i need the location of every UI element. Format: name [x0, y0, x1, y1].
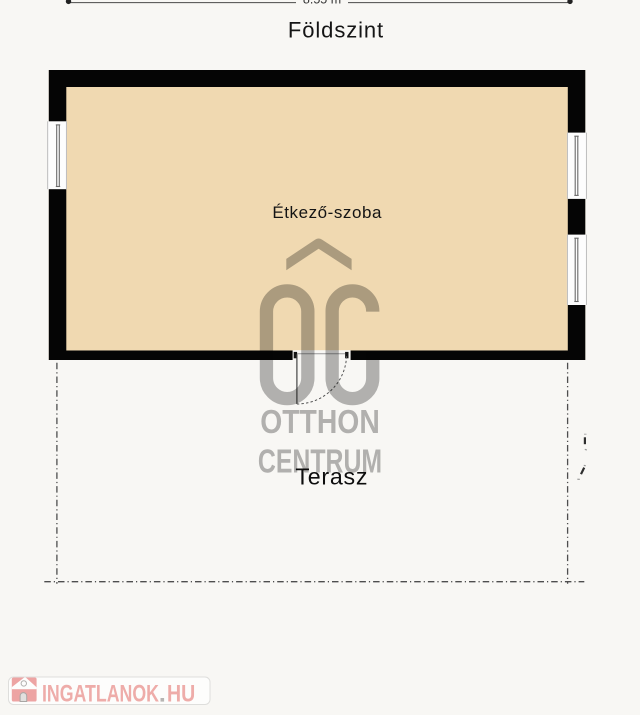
svg-text:HU: HU [167, 681, 195, 708]
svg-text:Étkező-szoba: Étkező-szoba [272, 203, 382, 222]
svg-text:CENTRUM: CENTRUM [258, 443, 382, 480]
svg-text:8.55 m: 8.55 m [303, 0, 341, 6]
svg-text:OTTHON: OTTHON [260, 403, 380, 440]
svg-text:Földszint: Földszint [288, 18, 384, 43]
svg-text:INGATLANOK: INGATLANOK [42, 681, 159, 708]
